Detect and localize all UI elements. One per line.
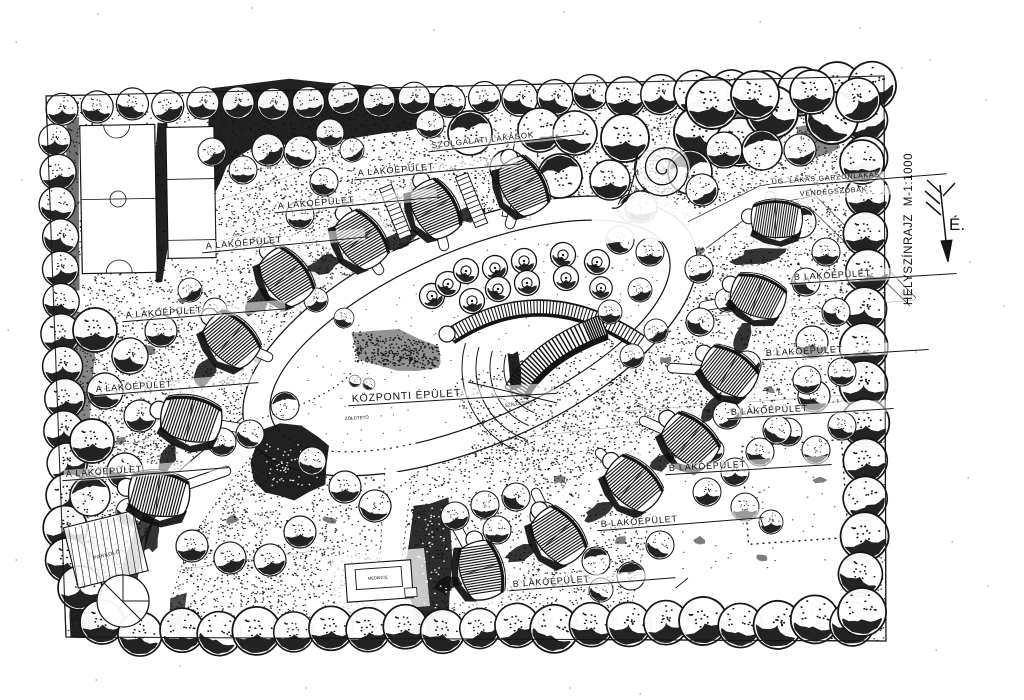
svg-text:HELYSZÍNRAJZ M-1:1000: HELYSZÍNRAJZ M-1:1000	[902, 153, 915, 305]
svg-text:É.: É.	[949, 215, 965, 234]
